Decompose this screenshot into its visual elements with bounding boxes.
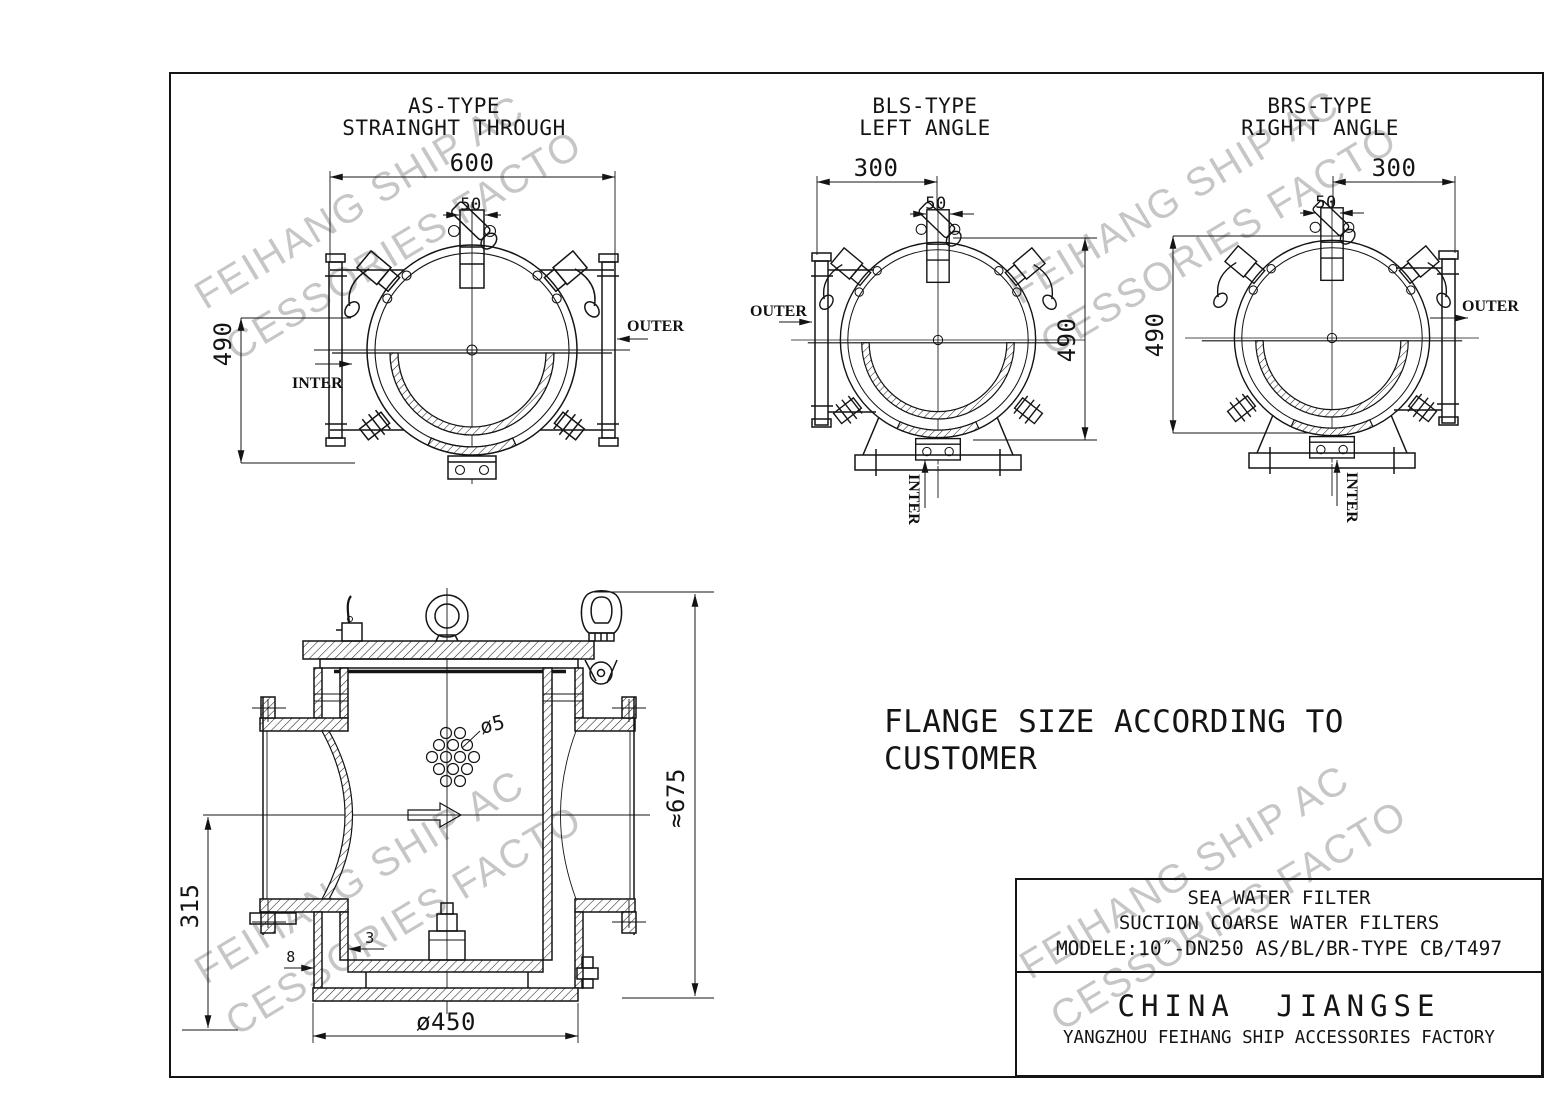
flange-note-line2: CUSTOMER: [884, 741, 1344, 778]
perforation-holes: [427, 728, 480, 787]
dim-section-height: 315: [176, 884, 204, 929]
product-subtitle: SUCTION COARSE WATER FILTERS: [1017, 912, 1541, 934]
company-name: YANGZHOU FEIHANG SHIP ACCESSORIES FACTOR…: [1017, 1028, 1541, 1048]
view-bls-title: BLS-TYPE: [872, 94, 977, 118]
dim-height-brs: 490: [1141, 313, 1169, 358]
flange-note-line1: FLANGE SIZE ACCORDING TO: [884, 704, 1344, 741]
dim-height-as: 490: [209, 322, 237, 367]
dim-basket-wall: 3: [365, 929, 375, 947]
dim-width-as: 600: [450, 149, 495, 177]
view-as-body: [241, 171, 648, 484]
view-brs-title: BRS-TYPE: [1267, 94, 1372, 118]
title-block-upper: SEA WATER FILTER SUCTION COARSE WATER FI…: [1017, 887, 1541, 973]
company-region: CHINA JIANGSE: [1017, 989, 1541, 1023]
dim-section-total: ≈675: [662, 768, 690, 828]
view-as-title: AS-TYPE: [408, 94, 500, 118]
inter-label-bls: INTER: [905, 474, 922, 525]
section-view: [182, 588, 714, 1043]
flange-note: FLANGE SIZE ACCORDING TO CUSTOMER: [884, 704, 1344, 778]
view-bls-subtitle: LEFT ANGLE: [859, 116, 990, 140]
title-block-lower: CHINA JIANGSE YANGZHOU FEIHANG SHIP ACCE…: [1017, 989, 1541, 1048]
dim-neck-as: 50: [460, 195, 481, 215]
dim-neck-bls: 50: [925, 194, 946, 214]
outer-label-as: OUTER: [627, 318, 684, 335]
dim-hole-dia: ø5: [477, 709, 507, 738]
drawing-sheet: FEIHANG SHIP AC CESSORIES FACTO FEIHANG …: [0, 0, 1559, 1102]
view-brs-body: [1173, 176, 1479, 506]
dim-width-bls: 300: [854, 154, 899, 182]
outer-label-brs: OUTER: [1462, 298, 1519, 315]
model-number: MODELE:10″-DN250 AS/BL/BR-TYPE CB/T497: [1017, 937, 1541, 960]
view-as-subtitle: STRAINGHT THROUGH: [342, 116, 565, 140]
dim-shell-wall: 8: [286, 948, 296, 966]
dim-neck-brs: 50: [1315, 193, 1336, 213]
view-bls-body: [779, 176, 1097, 508]
dim-height-bls: 490: [1053, 318, 1081, 363]
product-title: SEA WATER FILTER: [1017, 887, 1541, 909]
dim-base-dia: ø450: [416, 1008, 476, 1036]
view-brs-subtitle: RIGHTT ANGLE: [1241, 116, 1399, 140]
outer-label-bls: OUTER: [750, 303, 807, 320]
title-block: SEA WATER FILTER SUCTION COARSE WATER FI…: [1015, 878, 1543, 1077]
inter-label-as: INTER: [292, 375, 343, 392]
inter-label-brs: INTER: [1343, 472, 1360, 523]
dim-width-brs: 300: [1372, 154, 1417, 182]
